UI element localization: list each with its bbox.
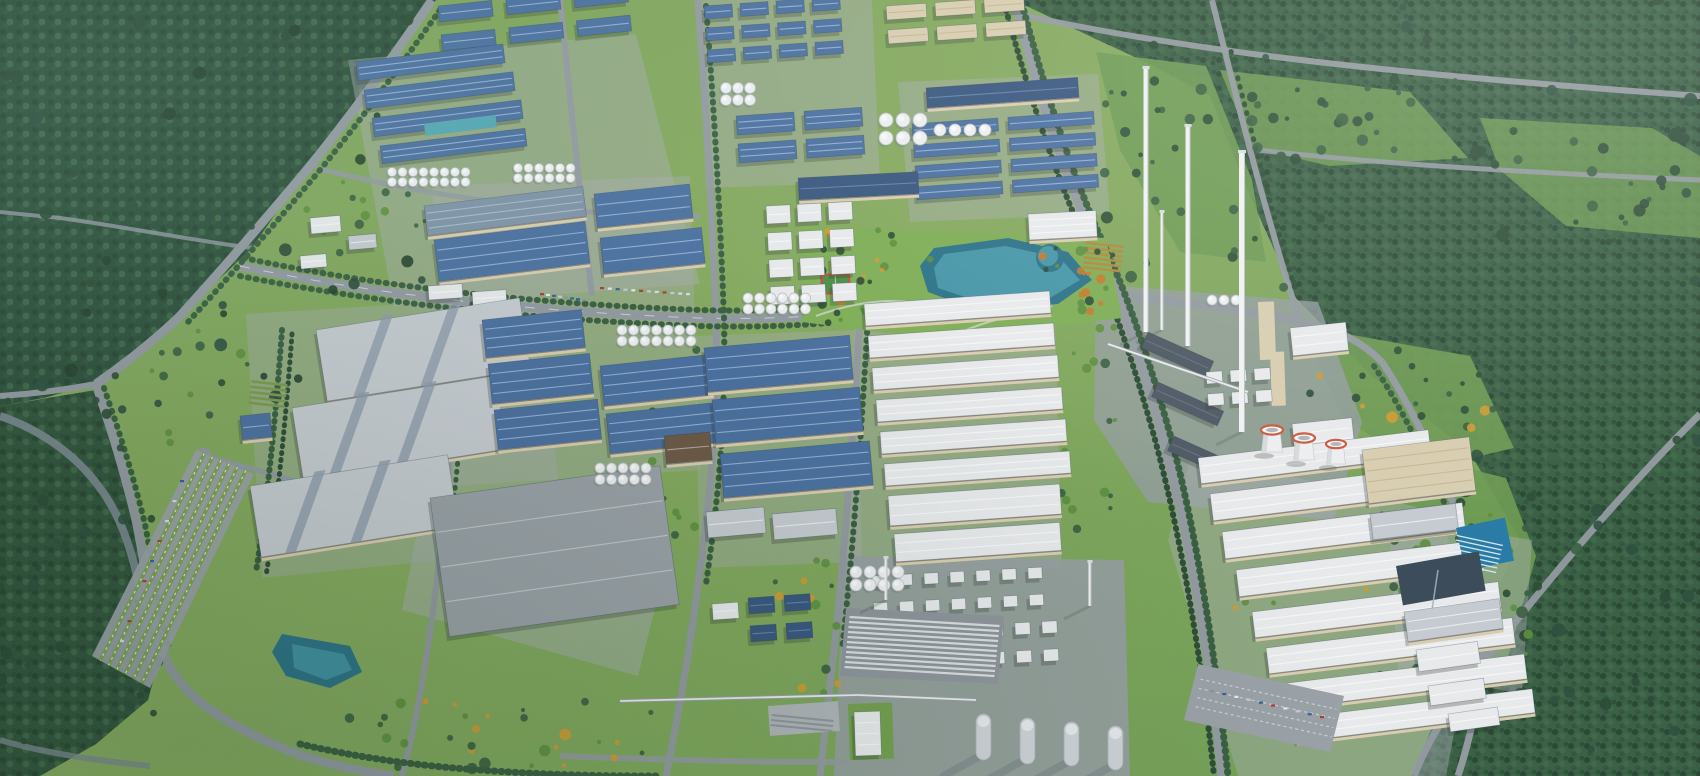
industrial-park-aerial-render [0,0,1700,776]
vignette [0,0,1700,776]
industrial-park-scene [0,0,1700,776]
